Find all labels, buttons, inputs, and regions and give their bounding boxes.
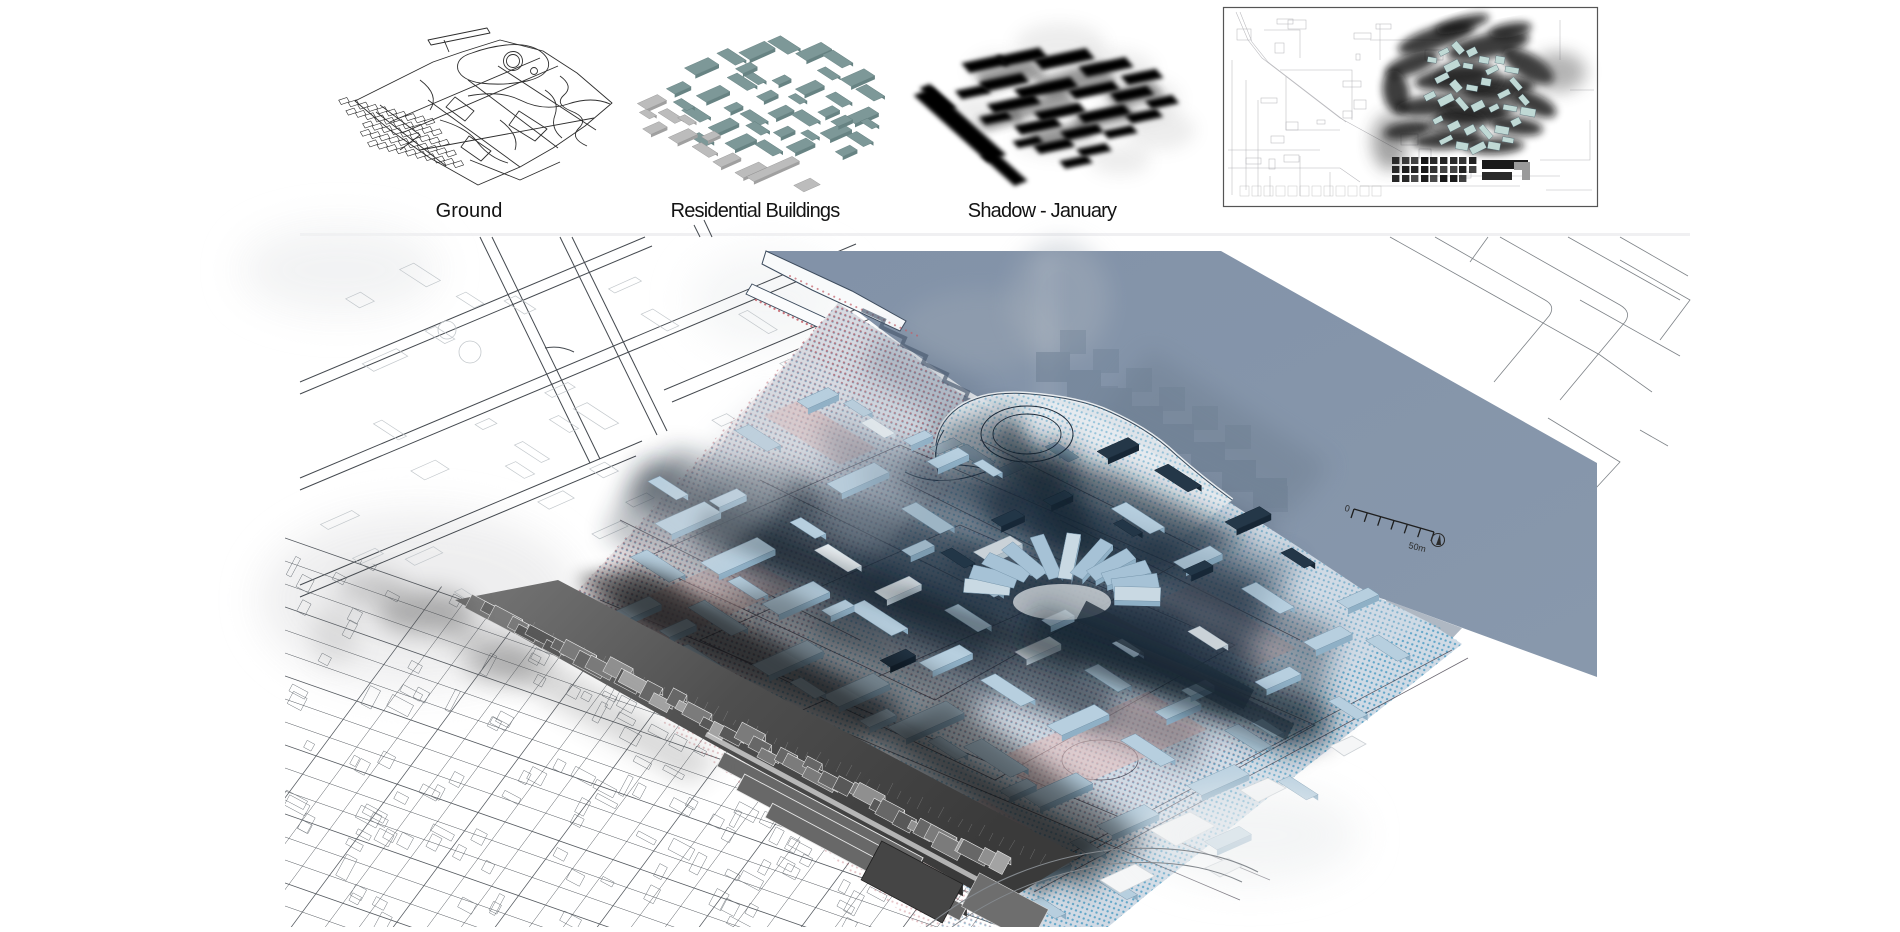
svg-text:Shadow - January: Shadow - January (968, 200, 1117, 222)
svg-text:Residential Buildings: Residential Buildings (671, 200, 841, 222)
svg-text:Ground: Ground (436, 200, 503, 222)
